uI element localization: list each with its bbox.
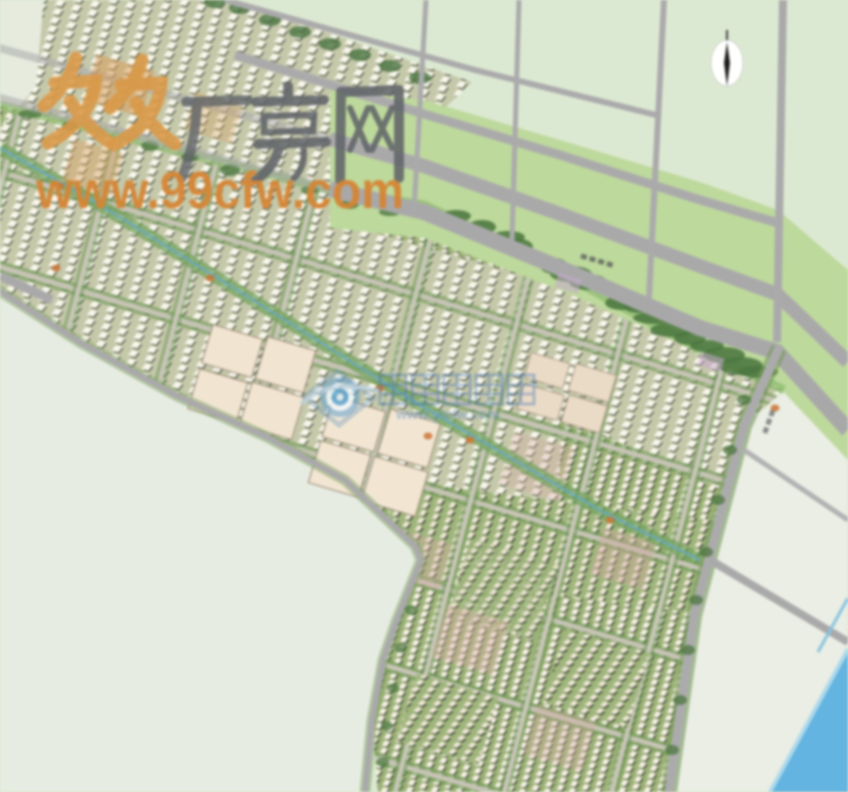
svg-text:www.99cfw.com: www.99cfw.com bbox=[35, 162, 404, 220]
svg-text:www.ytcfw.com: www.ytcfw.com bbox=[395, 406, 500, 422]
